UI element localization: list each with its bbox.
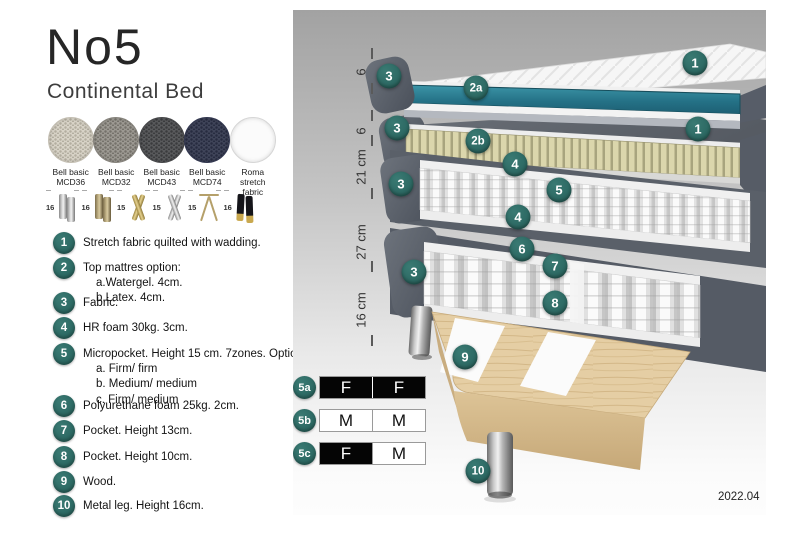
diagram-panel: 6621 cm27 cm16 cm 32a132b145346738910 5a… xyxy=(293,10,766,515)
feature-number-badge: 4 xyxy=(53,317,75,339)
feature-item: 4HR foam 30kg. 3cm. xyxy=(53,321,188,339)
feature-item: 10Metal leg. Height 16cm. xyxy=(53,499,204,517)
product-sheet: No5 Continental Bed Bell basicMCD36Bell … xyxy=(0,0,800,533)
ruler-tick xyxy=(371,110,373,121)
diagram-callout: 3 xyxy=(385,116,410,141)
diagram-callout: 8 xyxy=(543,291,568,316)
rear-metal-leg xyxy=(408,305,432,360)
diagram-callout: 2b xyxy=(466,129,491,154)
diagram-callout: 3 xyxy=(389,172,414,197)
feature-subline: a. Firm/ firm xyxy=(96,362,306,377)
ruler-label: 6 xyxy=(354,68,369,75)
left-panel: No5 Continental Bed Bell basicMCD36Bell … xyxy=(0,0,293,533)
diagram-callout: 3 xyxy=(377,64,402,89)
firmness-row-badge: 5a xyxy=(293,376,316,399)
diagram-callout: 3 xyxy=(402,260,427,285)
feature-text: Stretch fabric quilted with wadding. xyxy=(83,236,261,254)
diagram-callout: 9 xyxy=(453,345,478,370)
feature-text: Polyurethane foam 25kg. 2cm. xyxy=(83,399,239,417)
feature-subline: b. Medium/ medium xyxy=(96,377,306,392)
ruler-label: 21 cm xyxy=(354,149,369,184)
feature-item: 6Polyurethane foam 25kg. 2cm. xyxy=(53,399,239,417)
feature-number-badge: 6 xyxy=(53,395,75,417)
feature-item: 3Fabric. xyxy=(53,296,118,314)
feature-text: HR foam 30kg. 3cm. xyxy=(83,321,188,339)
feature-number-badge: 1 xyxy=(53,232,75,254)
diagram-callout: 1 xyxy=(686,117,711,142)
feature-subline: a.Watergel. 4cm. xyxy=(96,276,183,291)
feature-number-badge: 10 xyxy=(53,495,75,517)
feature-item: 1Stretch fabric quilted with wadding. xyxy=(53,236,261,254)
feature-item: 9Wood. xyxy=(53,475,116,493)
firmness-cell: F xyxy=(372,377,425,398)
feature-number-badge: 8 xyxy=(53,446,75,468)
feature-line: Pocket. Height 13cm. xyxy=(83,424,192,439)
feature-text: Pocket. Height 10cm. xyxy=(83,450,192,468)
feature-item: 7Pocket. Height 13cm. xyxy=(53,424,192,442)
version-label: 2022.04 xyxy=(718,491,760,503)
feature-text: Fabric. xyxy=(83,296,118,314)
diagram-callout: 4 xyxy=(506,205,531,230)
diagram-callout: 7 xyxy=(543,254,568,279)
diagram-callout: 6 xyxy=(510,237,535,262)
bed-illustration xyxy=(293,10,766,515)
ruler-tick xyxy=(371,83,373,94)
ruler-label: 6 xyxy=(354,127,369,134)
feature-line: Fabric. xyxy=(83,296,118,311)
ruler-tick xyxy=(371,135,373,146)
firmness-row: 5bMM xyxy=(293,409,426,432)
feature-item: 8Pocket. Height 10cm. xyxy=(53,450,192,468)
firmness-table: MM xyxy=(319,409,426,432)
firmness-cell: F xyxy=(320,377,372,398)
ruler-tick xyxy=(371,335,373,346)
firmness-table: FM xyxy=(319,442,426,465)
feature-number-badge: 5 xyxy=(53,343,75,365)
feature-line: Top mattres option: xyxy=(83,261,183,276)
feature-line: Wood. xyxy=(83,475,116,490)
diagram-callout: 4 xyxy=(503,152,528,177)
feature-list: 1Stretch fabric quilted with wadding.2To… xyxy=(0,0,293,533)
firmness-cell: M xyxy=(372,443,425,464)
feature-text: Wood. xyxy=(83,475,116,493)
ruler-label: 27 cm xyxy=(354,224,369,259)
diagram-callout: 5 xyxy=(547,178,572,203)
feature-line: Stretch fabric quilted with wadding. xyxy=(83,236,261,251)
ruler-tick xyxy=(371,261,373,272)
diagram-callout: 2a xyxy=(464,76,489,101)
firmness-row-badge: 5b xyxy=(293,409,316,432)
feature-text: Pocket. Height 13cm. xyxy=(83,424,192,442)
firmness-cell: M xyxy=(320,410,372,431)
feature-number-badge: 2 xyxy=(53,257,75,279)
feature-number-badge: 9 xyxy=(53,471,75,493)
ruler-tick xyxy=(371,188,373,199)
feature-line: Polyurethane foam 25kg. 2cm. xyxy=(83,399,239,414)
feature-line: HR foam 30kg. 3cm. xyxy=(83,321,188,336)
firmness-cell: F xyxy=(320,443,372,464)
feature-number-badge: 7 xyxy=(53,420,75,442)
firmness-row: 5aFF xyxy=(293,376,426,399)
ruler-label: 16 cm xyxy=(354,292,369,327)
firmness-row: 5cFM xyxy=(293,442,426,465)
feature-text: Metal leg. Height 16cm. xyxy=(83,499,204,517)
ruler-tick xyxy=(371,48,373,59)
feature-line: Micropocket. Height 15 cm. 7zones. Optio… xyxy=(83,347,306,362)
feature-line: Pocket. Height 10cm. xyxy=(83,450,192,465)
feature-number-badge: 3 xyxy=(53,292,75,314)
firmness-cell: M xyxy=(372,410,425,431)
diagram-callout: 10 xyxy=(466,459,491,484)
diagram-callout: 1 xyxy=(683,51,708,76)
firmness-row-badge: 5c xyxy=(293,442,316,465)
firmness-table: FF xyxy=(319,376,426,399)
feature-line: Metal leg. Height 16cm. xyxy=(83,499,204,514)
